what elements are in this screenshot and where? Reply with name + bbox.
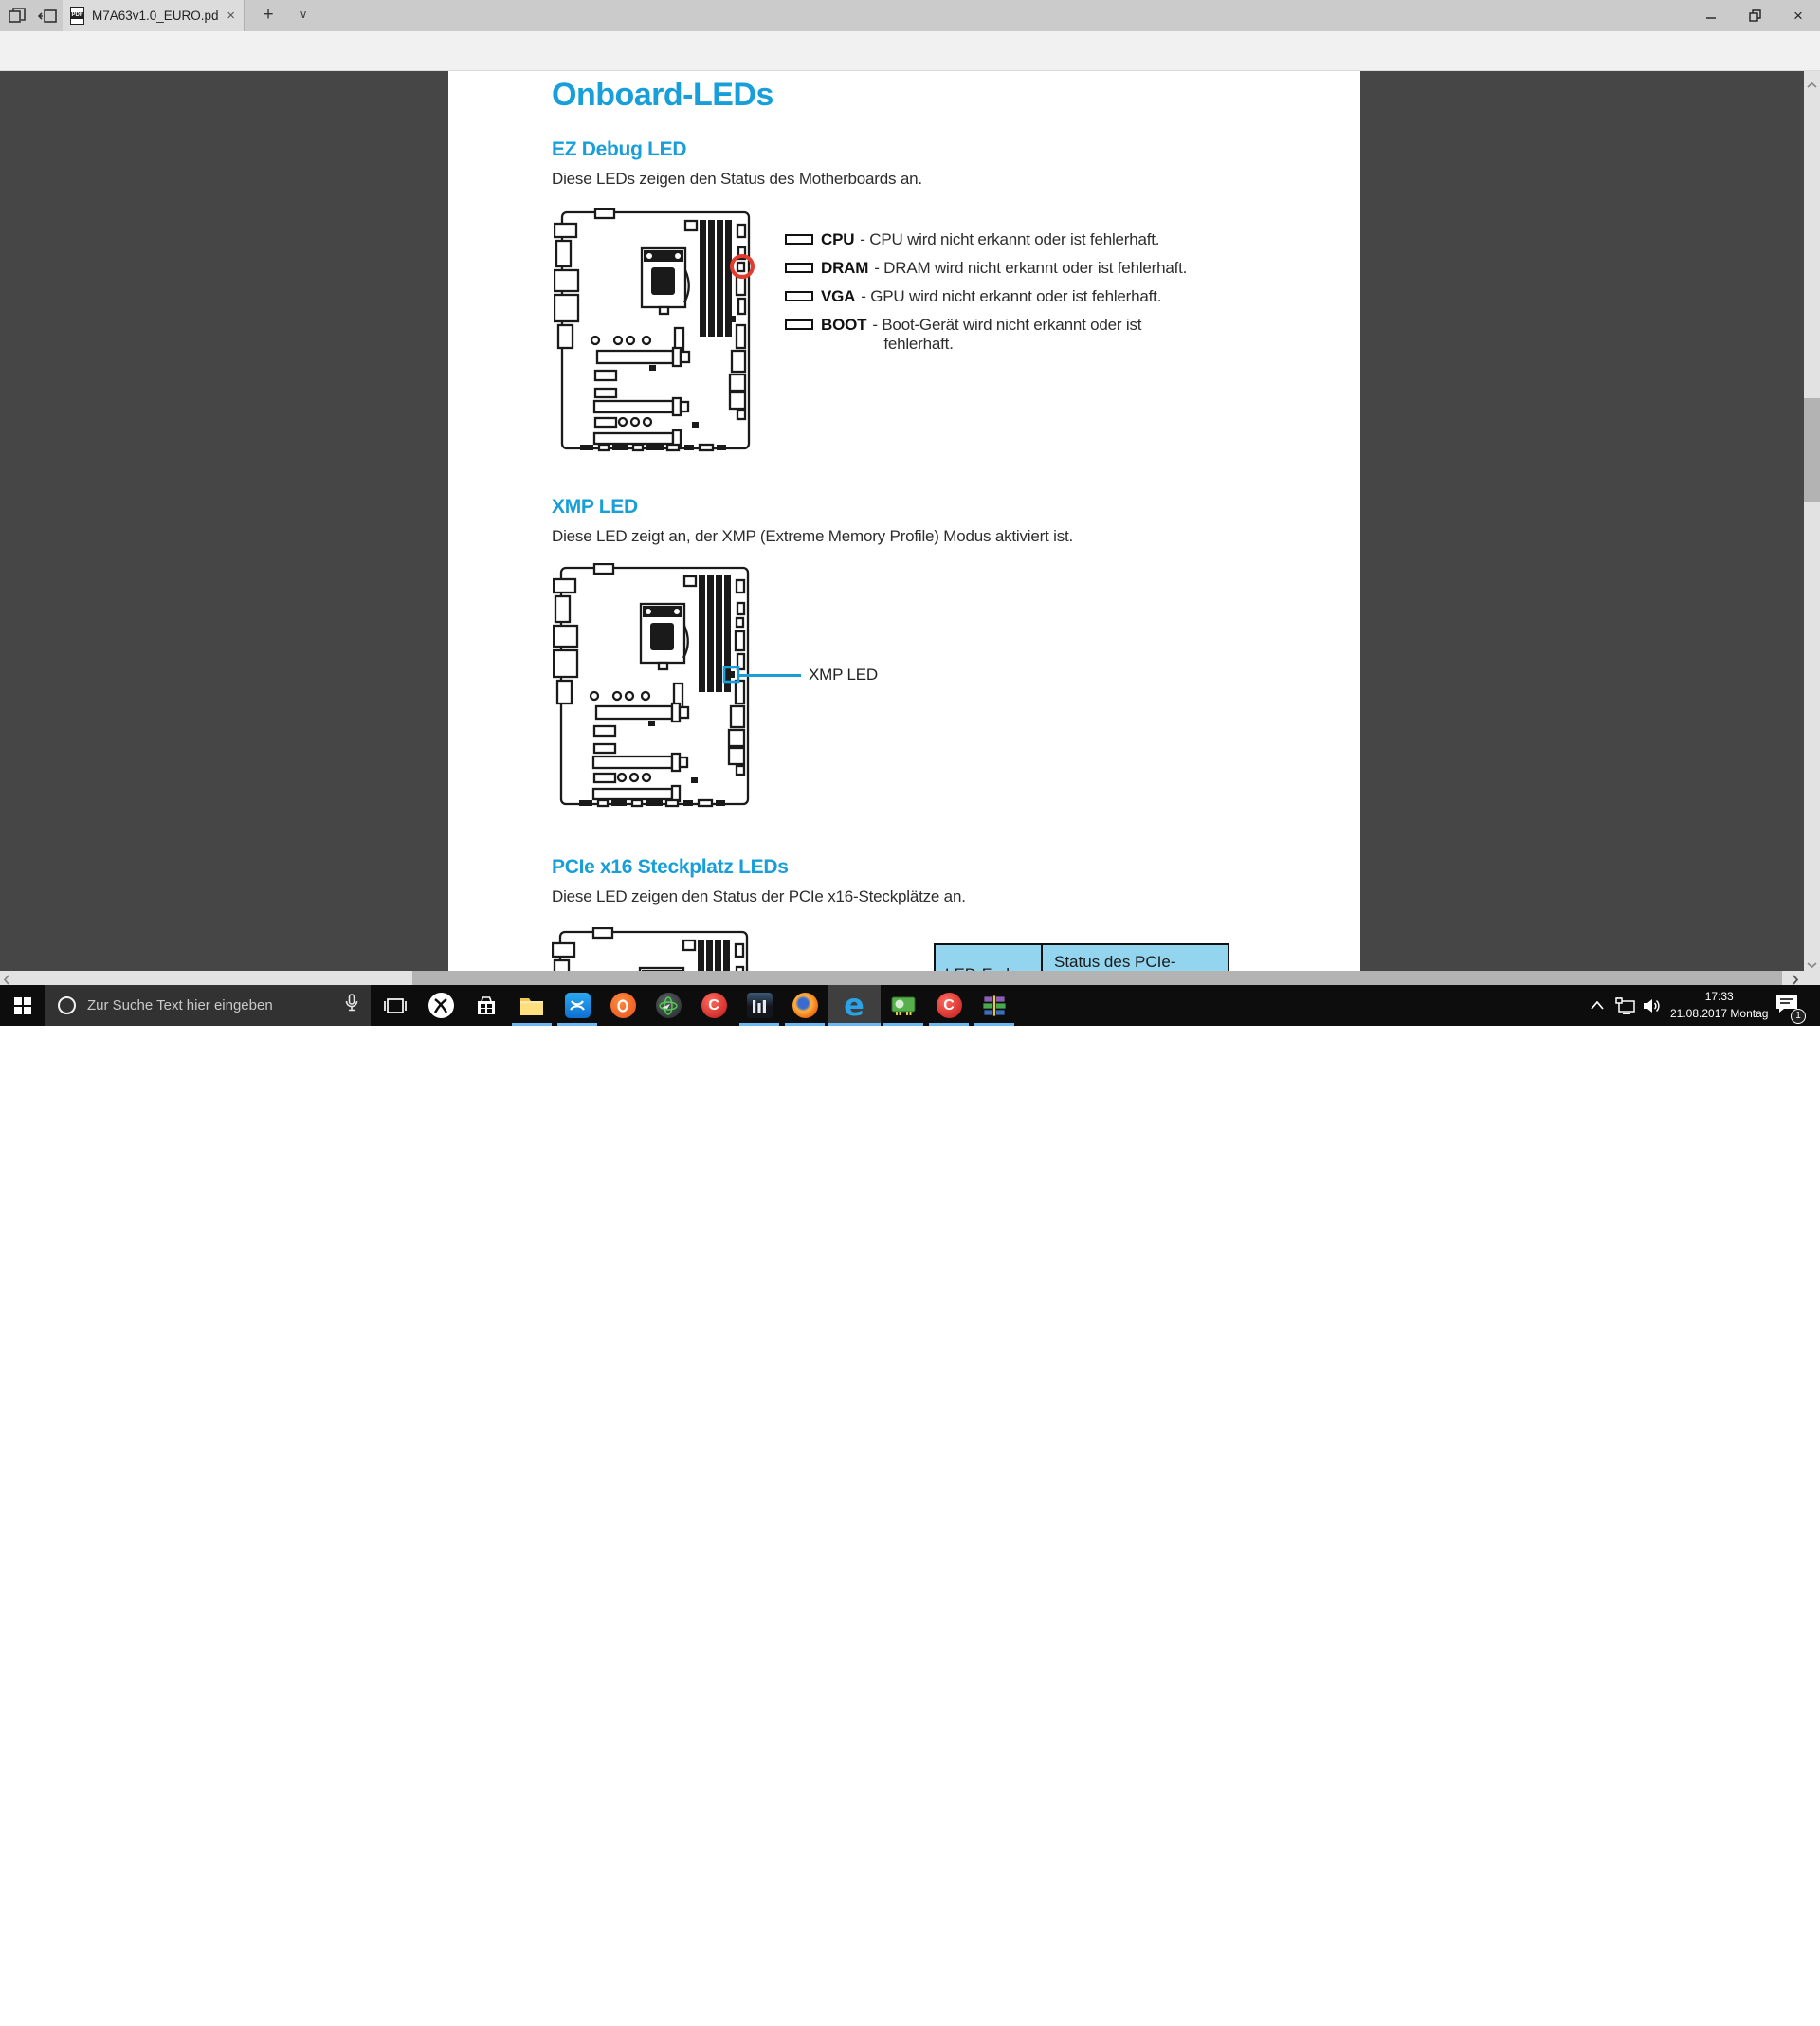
- xmp-callout-label: XMP LED: [809, 666, 878, 684]
- legend-desc-line2: fehlerhaft.: [872, 335, 1141, 354]
- running-indicator: [974, 1023, 1014, 1026]
- file-explorer-icon[interactable]: [509, 985, 555, 1026]
- restore-button[interactable]: [1733, 0, 1776, 31]
- start-button[interactable]: [0, 985, 45, 1026]
- horizontal-scrollbar[interactable]: [0, 971, 1804, 985]
- motherboard-diagram-xmp: [553, 563, 754, 814]
- scroll-up-icon[interactable]: [1807, 77, 1817, 94]
- tray-chevron[interactable]: [1591, 985, 1604, 1026]
- section-body-pcie: Diese LED zeigen den Status der PCIe x16…: [552, 887, 966, 906]
- tray-time: 17:33: [1670, 989, 1768, 1005]
- globe-utility-icon[interactable]: [646, 985, 691, 1026]
- close-window-button[interactable]: ×: [1776, 0, 1820, 31]
- minimize-button[interactable]: [1689, 0, 1733, 31]
- vertical-scrollbar[interactable]: [1804, 71, 1820, 985]
- section-body-xmp: Diese LED zeigt an, der XMP (Extreme Mem…: [552, 527, 1073, 546]
- address-bar: ← → ↻ file:///C:/Users/XTREME~1/AppData/…: [0, 31, 1820, 71]
- legend-row-vga: VGA - GPU wird nicht erkannt oder ist fe…: [785, 287, 1161, 306]
- scroll-down-icon[interactable]: [1807, 957, 1817, 974]
- motherboard-diagram-pcie: [552, 927, 753, 971]
- set-tabs-aside-icon[interactable]: [2, 0, 32, 31]
- table-header-pcie-status: Status des PCIe-: [1043, 945, 1228, 971]
- running-indicator: [557, 1023, 597, 1026]
- legend-desc: - DRAM wird nicht erkannt oder ist fehle…: [874, 259, 1187, 277]
- led-symbol: [785, 263, 813, 273]
- legend-row-dram: DRAM - DRAM wird nicht erkannt oder ist …: [785, 259, 1187, 278]
- taskbar-apps: C e C: [373, 985, 1017, 1026]
- windows-logo-icon: [14, 997, 31, 1014]
- legend-desc: - GPU wird nicht erkannt oder ist fehler…: [861, 287, 1161, 305]
- uplay-icon[interactable]: [555, 985, 600, 1026]
- pcie-status-table: LED-Farbe Status des PCIe-: [934, 943, 1229, 971]
- pdf-file-icon: PDF: [70, 7, 84, 25]
- legend-desc: - CPU wird nicht erkannt oder ist fehler…: [860, 230, 1159, 248]
- section-body-ez-debug: Diese LEDs zeigen den Status des Motherb…: [552, 170, 922, 189]
- tab-preview-chevron-icon[interactable]: ∨: [290, 0, 317, 31]
- taskbar: C e C: [0, 985, 1820, 1026]
- legend-label: VGA: [821, 287, 855, 306]
- pdf-viewer-background: Onboard-LEDs EZ Debug LED Diese LEDs zei…: [0, 71, 1820, 985]
- browser-tab[interactable]: PDF M7A63v1.0_EURO.pdf ×: [63, 0, 245, 31]
- legend-label: DRAM: [821, 259, 868, 278]
- pdf-page: Onboard-LEDs EZ Debug LED Diese LEDs zei…: [448, 71, 1360, 971]
- browser-tab-bar: PDF M7A63v1.0_EURO.pdf × + ∨ ×: [0, 0, 1820, 31]
- section-heading-ez-debug: EZ Debug LED: [552, 138, 686, 161]
- legend-row-boot: BOOT - Boot-Gerät wird nicht erkannt ode…: [785, 316, 1141, 354]
- running-indicator: [883, 1023, 923, 1026]
- horizontal-scrollbar-thumb[interactable]: [412, 971, 1782, 985]
- led-symbol: [785, 291, 813, 301]
- tray-date: 21.08.2017 Montag: [1670, 1006, 1768, 1022]
- device-manager-icon[interactable]: [881, 985, 926, 1026]
- taskbar-clock[interactable]: 17:33 21.08.2017 Montag: [1670, 985, 1768, 1026]
- firefox-icon[interactable]: [782, 985, 828, 1026]
- network-icon[interactable]: [1615, 985, 1636, 1026]
- page-title: Onboard-LEDs: [552, 77, 773, 114]
- led-symbol: [785, 234, 813, 245]
- legend-desc: - Boot-Gerät wird nicht erkannt oder ist: [872, 316, 1141, 334]
- edge-icon[interactable]: e: [828, 985, 881, 1026]
- stripes-app-icon[interactable]: [737, 985, 782, 1026]
- legend-label: BOOT: [821, 316, 866, 335]
- volume-icon[interactable]: [1642, 985, 1663, 1026]
- cortana-icon: [58, 996, 76, 1014]
- origin-icon[interactable]: [600, 985, 646, 1026]
- task-view-button[interactable]: [373, 985, 418, 1026]
- ccleaner-2-icon[interactable]: C: [926, 985, 972, 1026]
- new-tab-button[interactable]: +: [254, 0, 282, 31]
- running-indicator: [512, 1023, 552, 1026]
- section-heading-pcie: PCIe x16 Steckplatz LEDs: [552, 856, 789, 879]
- legend-row-cpu: CPU - CPU wird nicht erkannt oder ist fe…: [785, 230, 1159, 249]
- ccleaner-icon[interactable]: C: [691, 985, 737, 1026]
- running-indicator: [828, 1023, 881, 1026]
- notification-badge: 1: [1791, 1009, 1806, 1024]
- xmp-callout-line: [738, 674, 801, 677]
- microphone-icon[interactable]: [345, 994, 358, 1017]
- tabs-preview-icon[interactable]: [32, 0, 63, 31]
- action-center-icon[interactable]: 1: [1774, 985, 1799, 1026]
- tab-title: M7A63v1.0_EURO.pdf: [92, 9, 218, 23]
- running-indicator: [929, 1023, 969, 1026]
- search-input[interactable]: [87, 997, 345, 1013]
- table-header-led-color: LED-Farbe: [936, 945, 1043, 971]
- microsoft-store-icon[interactable]: [464, 985, 509, 1026]
- taskbar-search-box[interactable]: [45, 985, 371, 1026]
- xbox-app-icon[interactable]: [418, 985, 464, 1026]
- legend-label: CPU: [821, 230, 854, 249]
- section-heading-xmp: XMP LED: [552, 496, 638, 519]
- winrar-icon[interactable]: [972, 985, 1017, 1026]
- running-indicator: [739, 1023, 779, 1026]
- tab-close-icon[interactable]: ×: [218, 8, 244, 24]
- vertical-scrollbar-thumb[interactable]: [1804, 398, 1820, 502]
- running-indicator: [785, 1023, 825, 1026]
- led-symbol: [785, 319, 813, 330]
- motherboard-diagram-ez-debug: [554, 208, 755, 459]
